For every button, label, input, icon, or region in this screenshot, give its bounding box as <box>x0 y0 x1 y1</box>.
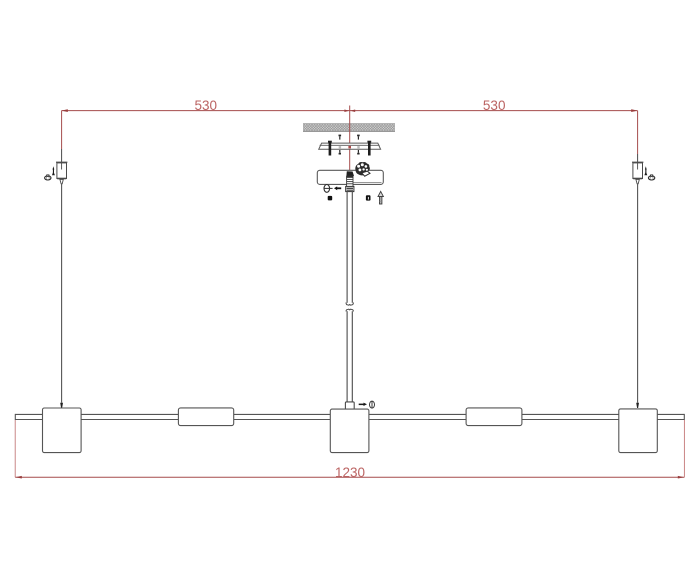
svg-text:1230: 1230 <box>335 465 365 480</box>
svg-text:530: 530 <box>483 98 506 113</box>
svg-text:530: 530 <box>195 98 218 113</box>
